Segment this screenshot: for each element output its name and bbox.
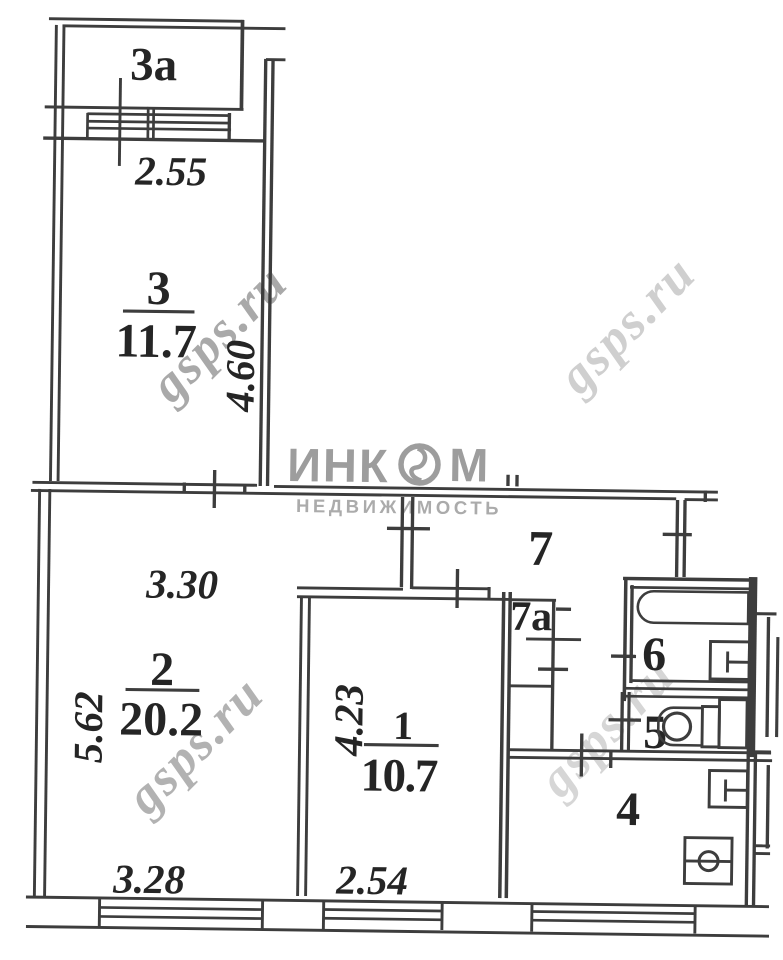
svg-text:11.7: 11.7 <box>115 314 197 368</box>
svg-text:7: 7 <box>528 520 554 576</box>
svg-text:7a: 7a <box>510 594 553 641</box>
svg-text:4: 4 <box>616 783 641 836</box>
svg-text:М: М <box>449 438 489 492</box>
svg-text:2: 2 <box>150 643 175 696</box>
svg-text:3.30: 3.30 <box>145 561 218 608</box>
svg-text:2.54: 2.54 <box>335 857 408 904</box>
svg-text:ИНК: ИНК <box>287 438 390 492</box>
svg-text:10.7: 10.7 <box>360 750 438 803</box>
svg-text:5.62: 5.62 <box>64 691 111 763</box>
svg-text:1: 1 <box>393 703 414 748</box>
svg-text:2.55: 2.55 <box>134 147 207 194</box>
svg-text:НЕДВИЖИМОСТЬ: НЕДВИЖИМОСТЬ <box>296 495 502 519</box>
svg-text:4.23: 4.23 <box>325 684 372 757</box>
svg-text:3.28: 3.28 <box>112 856 185 903</box>
svg-text:6: 6 <box>642 628 667 681</box>
svg-text:3a: 3a <box>130 39 178 92</box>
svg-text:20.2: 20.2 <box>119 693 204 747</box>
svg-text:4.60: 4.60 <box>216 340 263 413</box>
svg-text:3: 3 <box>146 262 171 315</box>
